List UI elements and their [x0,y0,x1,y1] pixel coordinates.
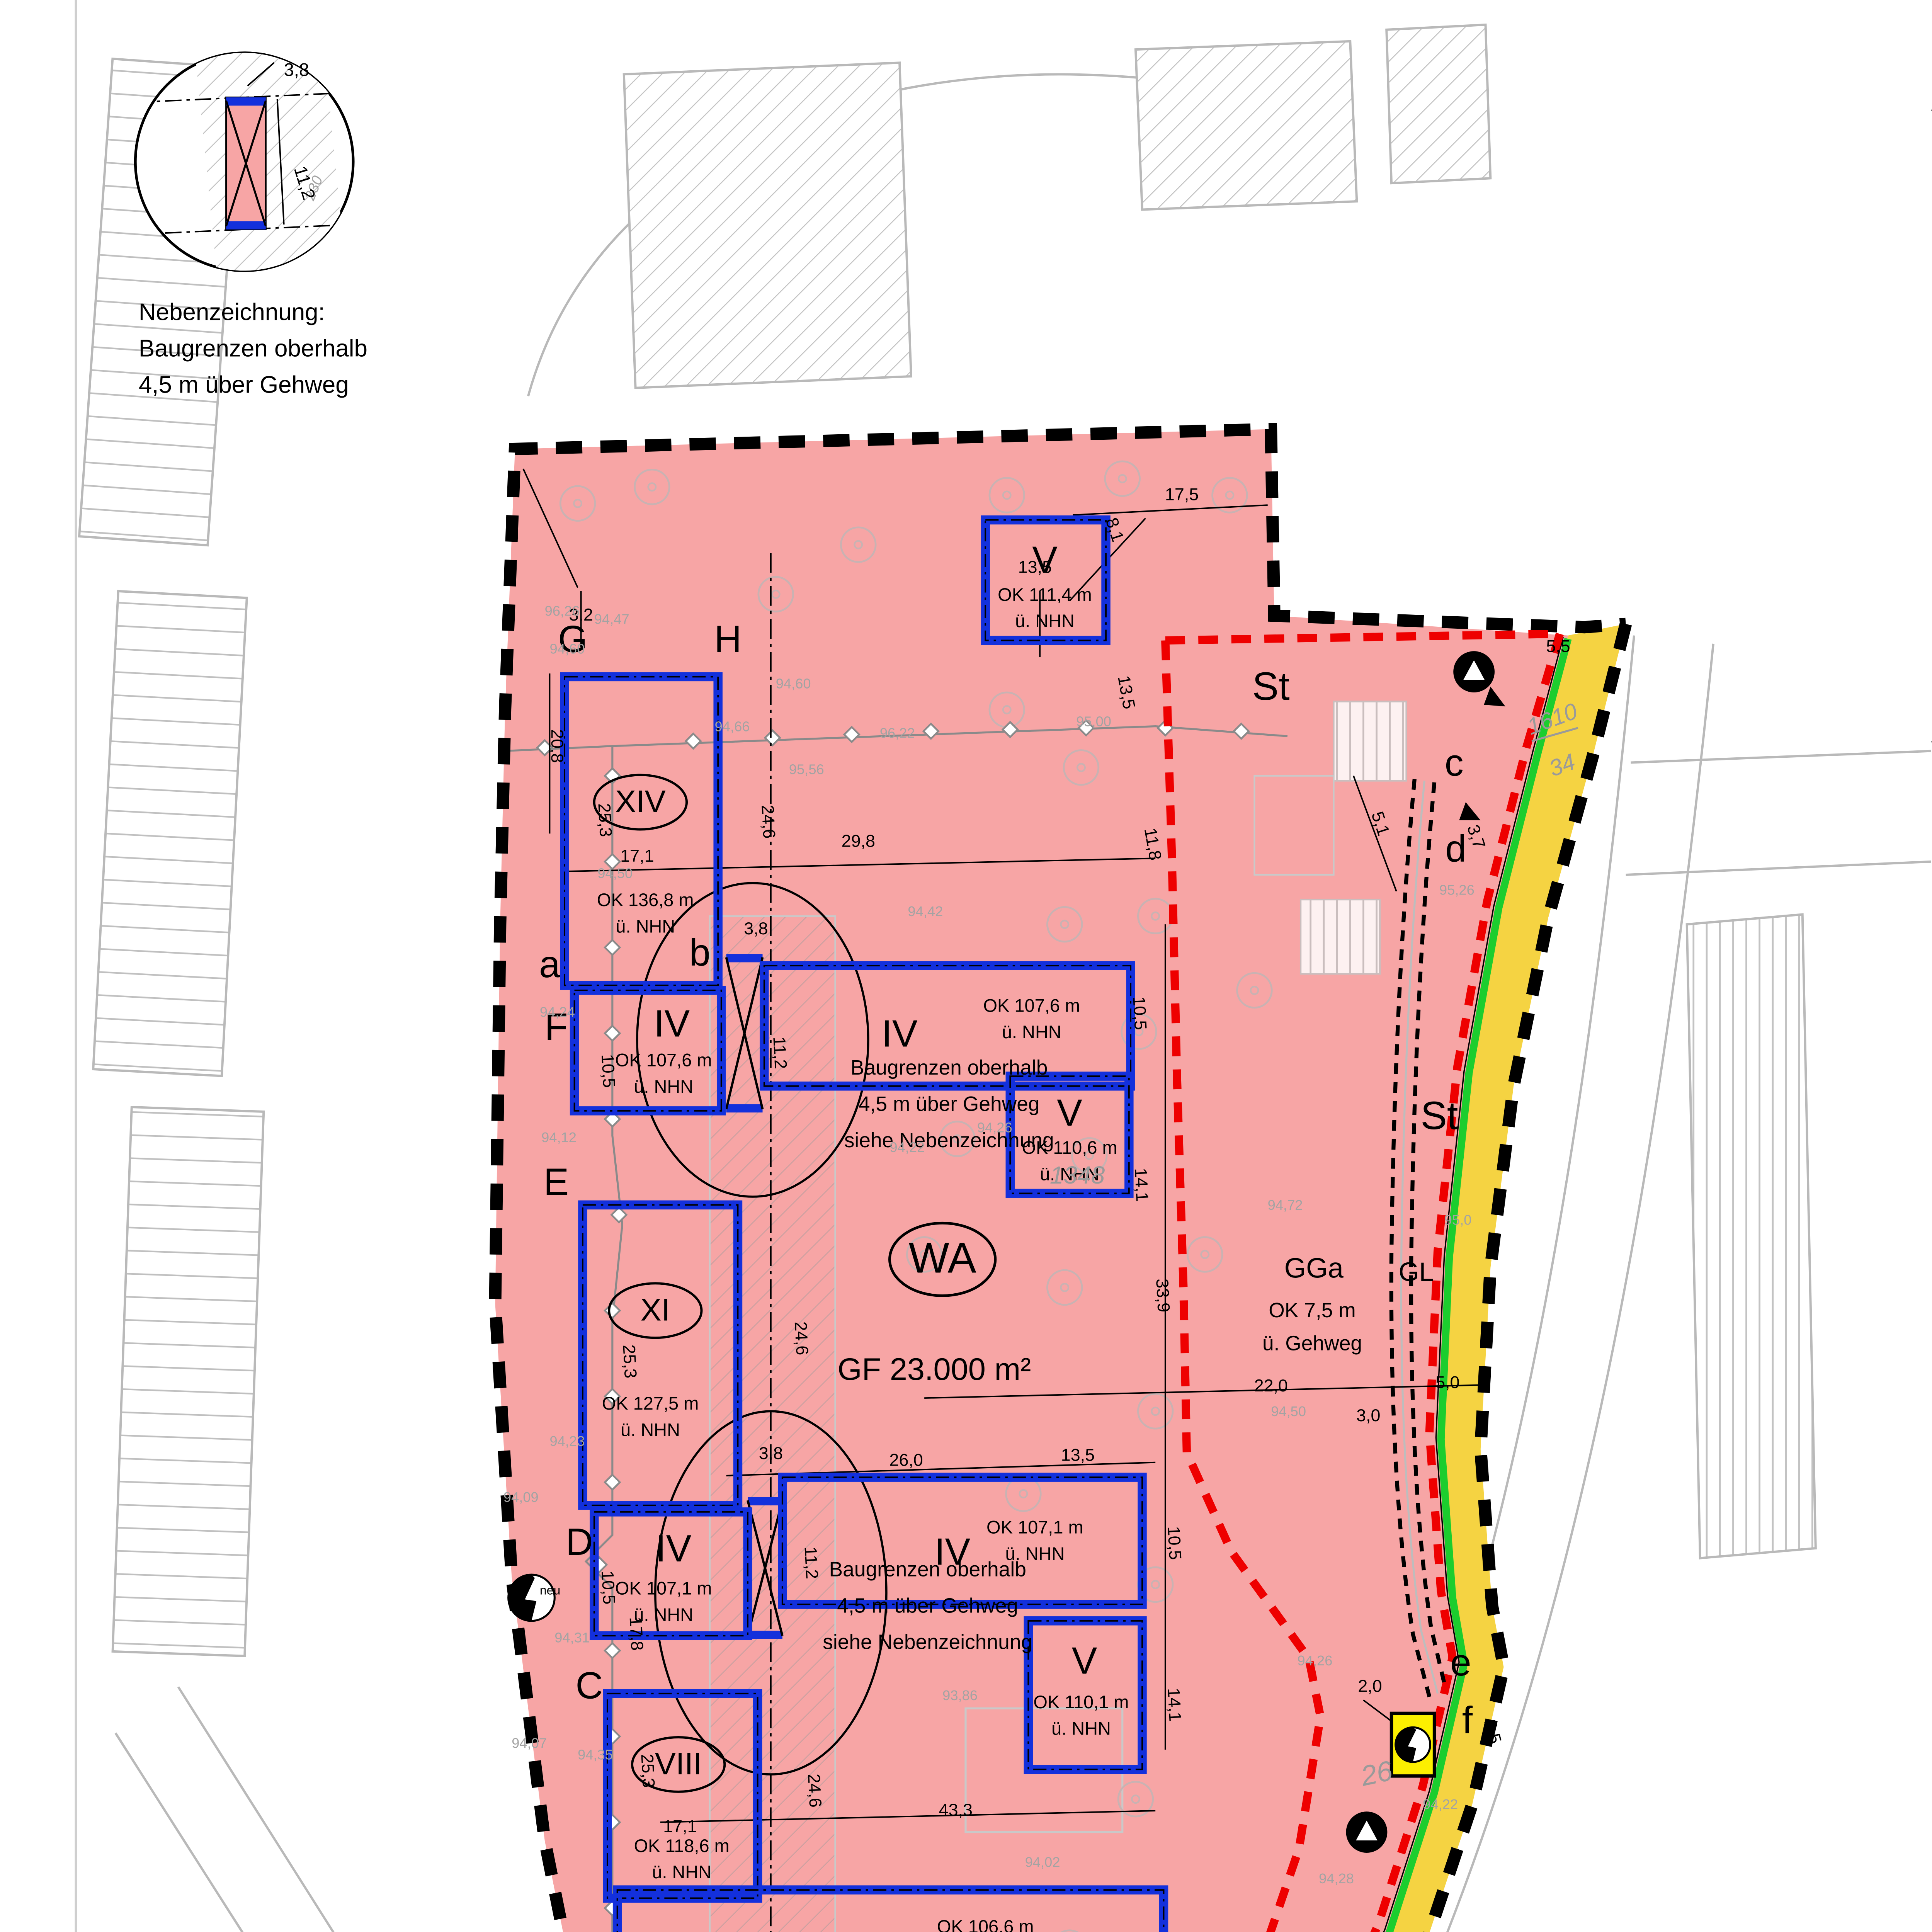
dimension-label: 5,0 [1435,1372,1459,1392]
site-plan: XIVOK 136,8 mü. NHNIVOK 107,6 mü. NHNIVO… [0,0,1932,1932]
elevation-label: 94,02 [1025,1854,1060,1870]
nebenzeichnung-detail: 230 3,8 11,2 Nebenzeichnung: Baugrenzen … [135,43,367,398]
trafo-new-label: neu [540,1583,560,1597]
dimension-label: 33,9 [1152,1278,1173,1313]
ok-height: OK 107,6 m [983,995,1080,1016]
elevation-label: 94,50 [597,866,633,881]
elevation-label: 94,42 [908,903,943,919]
ok-height: OK 107,6 m [615,1050,712,1070]
dimension-label: 10,5 [598,1054,619,1088]
ok-height: OK 118,6 m [634,1835,730,1856]
storey-count: V [1057,1091,1082,1134]
note1-line3: siehe Nebenzeichnung [844,1129,1054,1152]
dimension-label: 24,6 [804,1773,825,1808]
neb-caption-1: Nebenzeichnung: [139,299,325,326]
note2-line2: 4,5 m über Gehweg [837,1594,1018,1617]
dimension-label: 26,0 [889,1450,923,1469]
dimension-label: 13,5 [1018,557,1052,577]
wa-label: WA [909,1233,976,1282]
neb-dim-width: 3,8 [284,59,309,80]
dimension-label: 25,3 [619,1344,640,1379]
ok-height: OK 106,6 m [937,1916,1034,1932]
dimension-label: 20,8 [548,729,567,763]
neb-caption-3: 4,5 m über Gehweg [139,372,349,398]
elevation-label: 95,00 [1076,714,1111,730]
legend-panel: Planzeichenerklärung Art der baulichen N… [1921,13,1932,1932]
corner-letter: c [1445,742,1464,784]
ok-height: OK 111,4 m [998,584,1092,605]
ok-reference: ü. NHN [1051,1718,1111,1739]
corner-letter: f [1462,1699,1473,1741]
ok-reference: ü. NHN [1015,611,1075,631]
dimension-label: 17,5 [1165,484,1199,504]
storey-count: VIII [655,1747,702,1781]
gga-label: GGa [1284,1252,1344,1284]
dimension-label: 3,8 [759,1443,783,1463]
storey-count: V [1072,1639,1097,1682]
dimension-label: 11,2 [769,1036,791,1070]
corner-letter: d [1445,827,1466,870]
elevation-label: 96,22 [880,725,915,741]
elevation-label: 94,12 [541,1129,577,1145]
elevation-label: 94,07 [512,1735,547,1751]
plan-sheet: XIVOK 136,8 mü. NHNIVOK 107,6 mü. NHNIVO… [0,0,1932,1932]
storey-count: XIV [615,784,666,819]
parcel-1348: 1348 [1050,1161,1105,1189]
storey-count: IV [654,1002,690,1045]
elevation-label: 94,47 [594,611,629,627]
gf-label: GF 23.000 m² [837,1352,1031,1387]
note2-line1: Baugrenzen oberhalb [829,1558,1026,1581]
dimension-label: 25,3 [637,1753,658,1788]
ok-reference: ü. NHN [652,1862,711,1882]
corner-letter: H [714,617,742,660]
note1-line2: 4,5 m über Gehweg [859,1093,1040,1116]
elevation-label: 94,22 [889,1139,925,1155]
elevation-label: 94,50 [1271,1403,1306,1419]
ok-height: OK 110,1 m [1033,1692,1129,1712]
dimension-label: 14,1 [1131,1167,1152,1202]
dimension-label: 24,6 [791,1321,812,1356]
trafo-planned-icon [1391,1713,1434,1776]
dimension-label: 24,6 [758,804,779,839]
gga-ok-label: OK 7,5 m [1269,1299,1355,1322]
ok-height: OK 127,5 m [602,1393,699,1413]
corner-letter: E [544,1161,569,1203]
elevation-label: 95,26 [1439,882,1475,898]
neb-caption-2: Baugrenzen oberhalb [139,335,367,362]
elevation-label: 95,0 [1444,1212,1472,1228]
dimension-label: 10,5 [598,1570,619,1605]
dimension-label: 5,5 [1546,636,1570,656]
storey-count: XI [641,1293,670,1327]
st-label: St [1252,664,1290,708]
ok-reference: ü. NHN [621,1419,680,1440]
ok-height: OK 136,8 m [597,889,694,910]
elevation-label: 94,23 [549,1433,585,1449]
elevation-label: 94,26 [1298,1653,1333,1668]
st-label: St [1420,1093,1458,1138]
dimension-label: 3,0 [1356,1405,1380,1425]
elevation-label: 94,72 [1268,1197,1303,1213]
elevation-label: 94,66 [715,718,750,734]
dimension-label: 2,0 [1358,1676,1382,1696]
dimension-label: 17,1 [663,1816,697,1836]
ok-reference: ü. NHN [634,1076,693,1097]
corner-letter: e [1450,1641,1471,1684]
dimension-label: 10,5 [1129,996,1150,1031]
corner-letter: b [689,931,711,974]
elevation-label: 94,24 [540,1004,575,1020]
dimension-label: 13,5 [1061,1445,1095,1464]
ok-height: OK 107,1 m [986,1517,1083,1537]
elevation-label: 96,26 [545,603,580,619]
dimension-label: 17,1 [620,846,654,866]
elevation-label: 94,35 [578,1747,613,1763]
elevation-label: 94,22 [1423,1796,1458,1812]
dimension-label: 22,0 [1254,1376,1288,1395]
elevation-label: 93,86 [942,1687,978,1703]
dimension-label: 11,2 [801,1546,822,1580]
storey-count: IV [882,1012,918,1054]
elevation-label: 94,60 [776,675,811,691]
elevation-label: 94,26 [977,1119,1012,1135]
elevation-label: 94,09 [503,1489,539,1505]
note1-line1: Baugrenzen oberhalb [850,1056,1048,1079]
dimension-label: 25,3 [594,803,616,837]
elevation-label: 94,28 [1319,1871,1354,1886]
ok-reference: ü. NHN [1002,1022,1061,1042]
corner-letter: D [566,1520,593,1563]
note2-line3: siehe Nebenzeichnung [823,1631,1032,1653]
dimension-label: 10,5 [1164,1526,1185,1560]
ok-reference: ü. NHN [616,916,675,937]
corner-letter: C [576,1664,603,1707]
elevation-label: 94,60 [549,641,585,657]
dimension-label: 3,8 [744,918,768,938]
dimension-label: 14,1 [1164,1687,1185,1722]
gga-gehweg-label: ü. Gehweg [1262,1332,1362,1355]
corner-letter: a [539,943,560,985]
storey-count: IV [655,1527,691,1570]
parcel-26: 26 [1358,1755,1395,1792]
gl-label: GL [1399,1257,1434,1287]
dimension-label: 17,8 [626,1616,647,1651]
elevation-label: 94,31 [554,1629,590,1645]
ok-height: OK 107,1 m [615,1578,712,1598]
dimension-label: 43,3 [939,1800,973,1820]
elevation-label: 95,56 [789,761,824,777]
dimension-label: 29,8 [842,831,875,850]
